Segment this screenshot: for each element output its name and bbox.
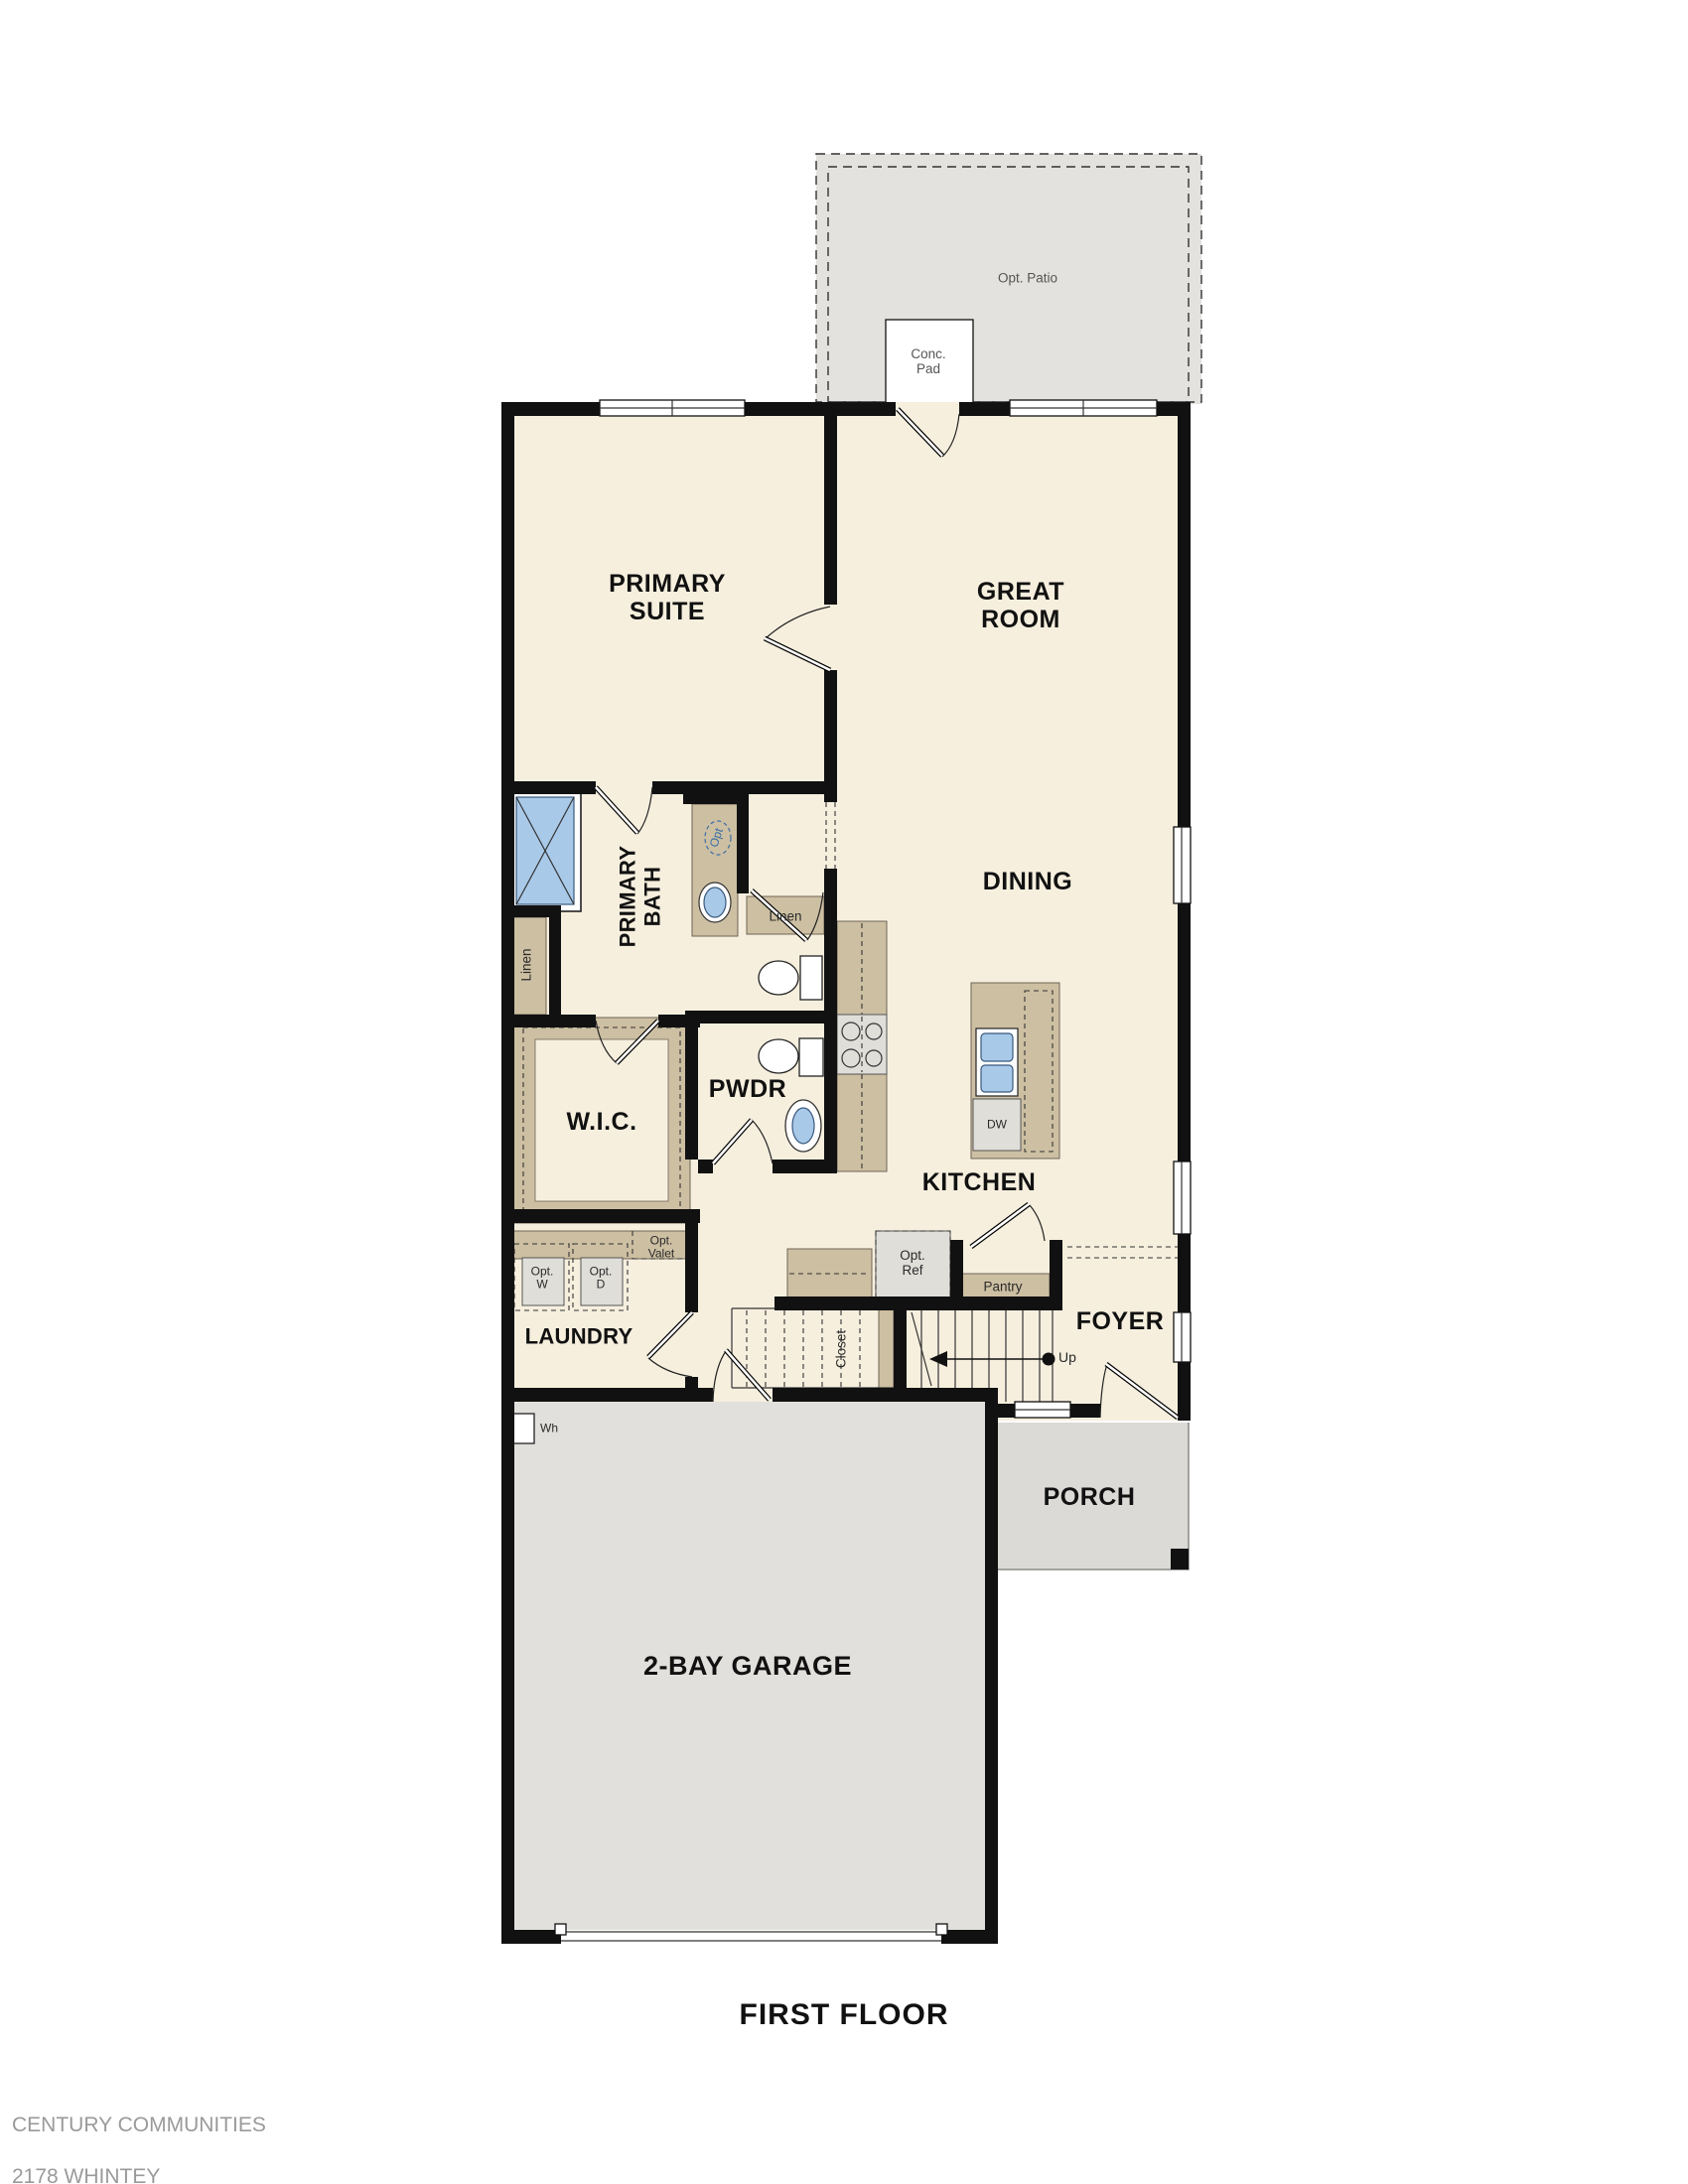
kitchen-island — [971, 983, 1059, 1159]
opt-patio-label: Opt. Patio — [998, 270, 1057, 285]
kitchen-label: KITCHEN — [922, 1168, 1037, 1196]
wic-label: W.I.C. — [566, 1108, 636, 1136]
pantry-label: Pantry — [983, 1279, 1022, 1294]
dishwasher-label: DW — [987, 1118, 1007, 1131]
primary-suite-label: PRIMARY SUITE — [609, 570, 726, 625]
shower — [509, 790, 581, 911]
footer-plan: 2178 WHINTEY — [12, 2164, 266, 2184]
window-foyer-lower — [1174, 1312, 1191, 1362]
porch-label: PORCH — [1044, 1483, 1136, 1511]
window-stair-porch — [1015, 1402, 1070, 1418]
foyer-label: FOYER — [1076, 1307, 1165, 1335]
window-primary-suite — [600, 400, 745, 416]
linen-right-label: Linen — [769, 908, 801, 923]
floor-title: FIRST FLOOR — [740, 1998, 949, 2032]
pwdr-sink — [785, 1100, 821, 1152]
conc-pad-label: Conc. Pad — [911, 346, 945, 376]
closet-shelf — [879, 1308, 894, 1390]
pwdr-label: PWDR — [709, 1075, 786, 1103]
footer-company: CENTURY COMMUNITIES — [12, 2113, 266, 2138]
opt-washer-label: Opt. W — [531, 1266, 554, 1293]
opt-ref-label: Opt. Ref — [900, 1248, 925, 1278]
island-sink — [976, 1028, 1018, 1096]
window-great-room — [1010, 400, 1157, 416]
laundry-label: LAUNDRY — [525, 1325, 633, 1350]
stairs-up-label: Up — [1058, 1350, 1076, 1366]
window-foyer-upper — [1174, 1161, 1191, 1234]
window-dining — [1174, 827, 1191, 903]
garage-label: 2-BAY GARAGE — [643, 1651, 852, 1681]
floorplan-drawing — [0, 0, 1688, 2184]
dining-label: DINING — [983, 868, 1073, 895]
floorplan-page: Opt. Patio Conc. Pad PRIMARY SUITE GREAT… — [0, 0, 1688, 2184]
water-heater-label: Wh — [540, 1422, 558, 1434]
linen-left-label: Linen — [518, 948, 533, 981]
primary-bath-label: PRIMARY BATH — [616, 846, 664, 948]
bath-sink — [699, 883, 731, 922]
opt-valet-label: Opt. Valet — [648, 1235, 674, 1262]
closet-label: Closet — [833, 1330, 848, 1368]
opt-dryer-label: Opt. D — [590, 1266, 613, 1293]
great-room-label: GREAT ROOM — [977, 578, 1064, 633]
plan-footer: CENTURY COMMUNITIES 2178 WHINTEY REV 01.… — [12, 2087, 266, 2184]
porch-column — [1171, 1549, 1189, 1570]
cooktop — [837, 1015, 887, 1074]
